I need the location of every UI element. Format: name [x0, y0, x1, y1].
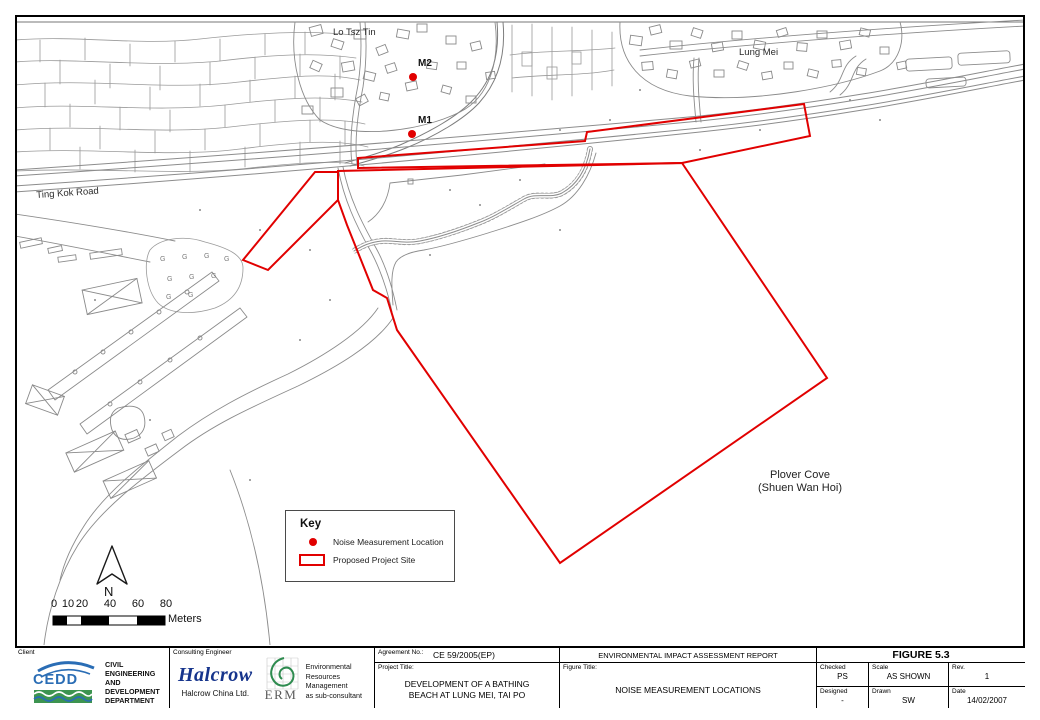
grass-symbol: G [166, 294, 171, 301]
project-title-line: BEACH AT LUNG MEI, TAI PO [375, 690, 559, 701]
key-item-label: Proposed Project Site [333, 555, 415, 565]
scale-tick-20: 20 [74, 598, 90, 610]
figure-number-row: FIGURE 5.3 [817, 648, 1025, 663]
figure-title: NOISE MEASUREMENT LOCATIONS [560, 685, 816, 695]
mid-parcels [510, 24, 615, 100]
scale-bar [53, 616, 165, 625]
title-block-meta-cell: FIGURE 5.3 Checked PS Scale AS SHOWN Rev… [817, 648, 1025, 708]
checked-cell: Checked PS [817, 663, 868, 686]
drawing-sheet: Lo Tsz Tin Lung Mei M2 M1 Ting Kok Road … [0, 0, 1040, 720]
halcrow-logo: Halcrow Halcrow China Ltd. [178, 664, 253, 698]
figure-number: FIGURE 5.3 [817, 649, 1025, 661]
report-title-row: ENVIRONMENTAL IMPACT ASSESSMENT REPORT [560, 648, 816, 663]
signature-grid: Checked PS Scale AS SHOWN Rev. 1 Designe… [817, 663, 1025, 708]
site-main-polygon [338, 163, 827, 563]
title-block-consultant-cell: Consulting Engineer Halcrow Halcrow Chin… [170, 648, 375, 708]
date-cell: Date 14/02/2007 [948, 686, 1025, 709]
terrace-contours [15, 32, 368, 172]
scale-tick-40: 40 [102, 598, 118, 610]
scale-value: AS SHOWN [869, 672, 948, 681]
figure-title-label: Figure Title: [563, 664, 597, 671]
grass-symbol: G [167, 276, 172, 283]
grass-symbol: G [211, 273, 216, 280]
scale-unit-label: Meters [168, 613, 202, 625]
consulting-engineer-label: Consulting Engineer [173, 649, 232, 656]
lung-mei-houses [620, 22, 907, 98]
map-canvas [0, 0, 1040, 720]
key-title: Key [300, 518, 454, 530]
title-block: Client CEDD CIVIL ENGINEERING AND DEVELO… [15, 646, 1025, 708]
title-block-client-cell: Client CEDD CIVIL ENGINEERING AND DEVELO… [15, 648, 170, 708]
grass-symbol: G [189, 274, 194, 281]
date-label: Date [952, 688, 966, 695]
noise-location-m2-dot [409, 73, 417, 81]
client-name-line: AND DEVELOPMENT [105, 678, 169, 696]
scale-tick-80: 80 [158, 598, 174, 610]
project-title-label: Project Title: [378, 664, 414, 671]
checked-value: PS [817, 672, 868, 681]
erm-description-line: as sub-consultant [306, 691, 362, 701]
cedd-wordmark: CEDD [33, 672, 78, 688]
agreement-label: Agreement No.: [378, 649, 424, 656]
project-title: DEVELOPMENT OF A BATHING BEACH AT LUNG M… [375, 679, 559, 701]
project-title-line: DEVELOPMENT OF A BATHING [375, 679, 559, 690]
grass-symbol: G [160, 256, 165, 263]
designed-label: Designed [820, 688, 847, 695]
village-road [351, 22, 701, 164]
client-name: CIVIL ENGINEERING AND DEVELOPMENT DEPART… [105, 660, 169, 705]
erm-wordmark: ERM [265, 687, 298, 703]
scale-tick-60: 60 [130, 598, 146, 610]
plover-cove-line2: (Shuen Wan Hoi) [740, 482, 860, 495]
designed-value: - [817, 696, 868, 705]
erm-description-line: Environmental [306, 662, 362, 672]
noise-location-m1-dot [408, 130, 416, 138]
date-value: 14/02/2007 [949, 696, 1025, 705]
label-m2: M2 [418, 58, 432, 69]
north-arrow-letter: N [104, 584, 113, 599]
agreement-row: Agreement No.: CE 59/2005(EP) [375, 648, 559, 663]
erm-description: Environmental Resources Management as su… [306, 662, 362, 700]
upper-road-lines [640, 20, 1025, 95]
site-strip [358, 104, 810, 168]
rev-label: Rev. [952, 664, 965, 671]
title-block-project-cell: Agreement No.: CE 59/2005(EP) Project Ti… [375, 648, 560, 708]
label-plover-cove: Plover Cove (Shuen Wan Hoi) [740, 469, 860, 495]
erm-description-line: Resources [306, 672, 362, 682]
drawn-value: SW [869, 696, 948, 705]
drawn-label: Drawn [872, 688, 891, 695]
cedd-logo: CEDD [31, 655, 99, 705]
grass-symbol: G [224, 256, 229, 263]
halcrow-wordmark: Halcrow [178, 664, 253, 687]
scale-cell: Scale AS SHOWN [868, 663, 948, 686]
erm-logo: ERM [265, 656, 301, 704]
rev-value: 1 [949, 672, 1025, 681]
key-item-label: Noise Measurement Location [333, 537, 444, 547]
plover-cove-line1: Plover Cove [740, 469, 860, 482]
map-key: Key Noise Measurement Location Proposed … [285, 510, 455, 582]
project-site-symbol [299, 554, 325, 566]
noise-dot-symbol [309, 538, 317, 546]
grass-symbol: G [188, 292, 193, 299]
report-title: ENVIRONMENTAL IMPACT ASSESSMENT REPORT [560, 651, 816, 660]
agreement-value: CE 59/2005(EP) [433, 650, 495, 660]
designed-cell: Designed - [817, 686, 868, 709]
ting-kok-road-lines [15, 64, 1025, 192]
erm-description-line: Management [306, 681, 362, 691]
key-item-noise-location: Noise Measurement Location [299, 534, 454, 549]
label-lo-tsz-tin: Lo Tsz Tin [333, 27, 376, 38]
north-arrow [97, 546, 127, 584]
client-name-line: DEPARTMENT [105, 696, 169, 705]
site-west-arm [243, 172, 338, 270]
figure-title-row: Figure Title: NOISE MEASUREMENT LOCATION… [560, 663, 816, 708]
label-m1: M1 [418, 115, 432, 126]
client-name-line: CIVIL ENGINEERING [105, 660, 169, 678]
title-block-figure-cell: ENVIRONMENTAL IMPACT ASSESSMENT REPORT F… [560, 648, 817, 708]
halcrow-company-name: Halcrow China Ltd. [178, 689, 253, 698]
label-lung-mei: Lung Mei [739, 47, 778, 58]
grass-symbol: G [182, 254, 187, 261]
project-title-row: Project Title: DEVELOPMENT OF A BATHING … [375, 663, 559, 708]
scale-label: Scale [872, 664, 888, 671]
checked-label: Checked [820, 664, 846, 671]
key-item-project-site: Proposed Project Site [299, 552, 454, 567]
drawn-cell: Drawn SW [868, 686, 948, 709]
grass-patch [146, 238, 243, 312]
grass-symbol: G [204, 253, 209, 260]
rev-cell: Rev. 1 [948, 663, 1025, 686]
